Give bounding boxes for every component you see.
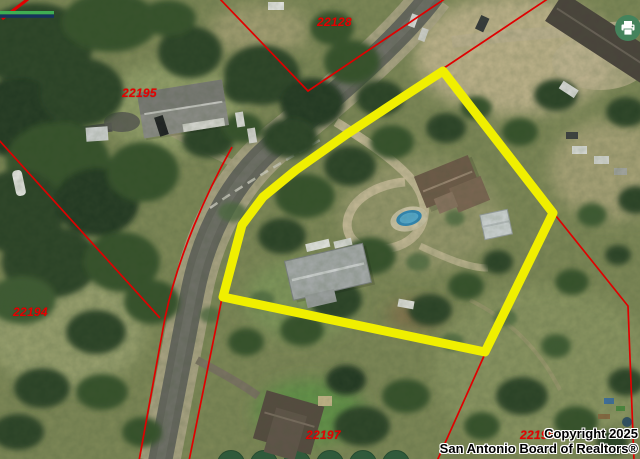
aerial-map[interactable]: 22128 22195 22194 22197 22198 Copyright … (0, 0, 640, 459)
parcel-label: 22194 (13, 306, 48, 318)
print-button[interactable] (614, 14, 640, 42)
aerial-imagery (0, 0, 640, 459)
parcel-label: 22195 (122, 87, 157, 99)
printer-icon (614, 14, 640, 42)
copyright-line1: Copyright 2025 (440, 426, 638, 441)
parcel-label: 22197 (306, 429, 341, 441)
parcel-label: 22128 (317, 16, 352, 28)
copyright-line2: San Antonio Board of Realtors® (440, 441, 638, 456)
scale-bar (0, 11, 54, 18)
copyright-attribution: Copyright 2025 San Antonio Board of Real… (440, 426, 638, 456)
